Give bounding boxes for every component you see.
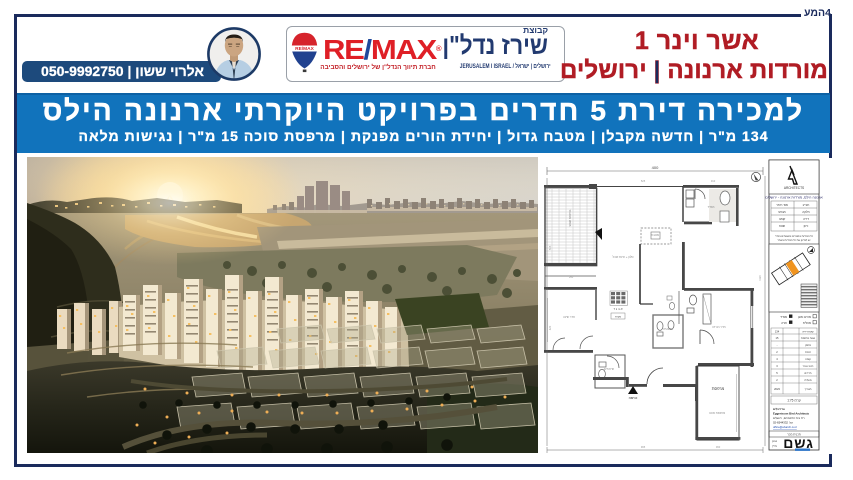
svg-text:אמבטיה: אמבטיה [663,327,673,331]
svg-text:שטח מרפסת: שטח מרפסת [801,337,815,340]
svg-text:310: 310 [711,179,716,183]
svg-text:400: 400 [652,165,659,170]
svg-text:יש לבדוק את כל המידות באתר: יש לבדוק את כל המידות באתר [777,238,810,242]
svg-text:מגרש: מגרש [778,210,785,214]
svg-text:מטבח: מטבח [651,233,659,237]
svg-text:מעלית: מעלית [804,378,811,382]
svg-text:995: 995 [641,445,646,449]
svg-text:טל: 02-6544332: טל: 02-6544332 [773,421,793,425]
svg-text:מחסן: מחסן [805,344,811,347]
svg-text:ממ"ד: ממ"ד [708,205,715,209]
svg-text:RE/MAX: RE/MAX [295,46,314,52]
svg-text:מרפסת: מרפסת [712,386,725,391]
svg-text:-: - [777,344,778,347]
svg-text:חדר הורים: חדר הורים [712,325,725,329]
svg-text:כל המידות במטרים והשטחים במ"ר: כל המידות במטרים והשטחים במ"ר [775,234,814,238]
svg-text:נדל"ן: נדל"ן [772,445,777,448]
svg-text:מס' היתר: מס' היתר [776,203,788,207]
svg-text:525: 525 [641,179,646,183]
svg-text:מרפסת שמש: מרפסת שמש [568,210,572,227]
svg-text:תב"ע: תב"ע [803,203,810,207]
svg-text:ARCHITECTS: ARCHITECTS [784,186,804,190]
svg-text:קומה: קומה [805,358,811,361]
svg-text:רח' בית הדפוס 12, ירושלים: רח' בית הדפוס 12, ירושלים [773,416,805,420]
svg-text:כיווני אוויר: כיווני אוויר [803,365,814,368]
svg-text:מעלית: מעלית [803,321,811,325]
svg-text:134: 134 [775,330,780,334]
svg-text:חניה: חניה [781,321,787,325]
svg-text:Eggertsson Bird Architects: Eggertsson Bird Architects [773,412,810,416]
svg-text:חלקה: חלקה [802,210,809,214]
svg-text:תאריך: תאריך [805,388,812,391]
svg-text:360: 360 [716,445,721,449]
svg-text:דירה: דירה [803,217,809,221]
svg-text:מרחב מוגן: מרחב מוגן [798,315,811,319]
svg-text:קומה: קומה [779,217,786,221]
svg-text:350: 350 [569,275,574,279]
svg-text:קנ"מ 1:75: קנ"מ 1:75 [787,399,801,403]
svg-text:שירותים: שירותים [604,367,615,371]
svg-text:מרפסת סוכה: מרפסת סוכה [709,411,725,415]
svg-text:515: 515 [548,245,552,250]
svg-text:2023: 2023 [774,387,780,391]
svg-text:חדר שינה: חדר שינה [563,315,575,319]
svg-text:1120: 1120 [758,275,762,281]
svg-text:כניסה: כניסה [629,396,638,400]
svg-text:חניות: חניות [805,351,811,354]
svg-text:סלון + פינת אוכל: סלון + פינת אוכל [613,255,634,259]
svg-text:ממ"ד: ממ"ד [780,315,787,319]
svg-text:חדרים: חדרים [805,372,812,375]
svg-text:שטח דירה: שטח דירה [802,331,813,334]
svg-text:420: 420 [548,325,552,330]
svg-text:ארנונה הילס, מורדות ארנונה - י: ארנונה הילס, מורדות ארנונה - ירושלים [765,196,823,200]
svg-text:אדריכלים: אדריכלים [773,407,785,411]
svg-text:מקרא: מקרא [615,316,622,319]
svg-text:כיוון: כיוון [804,224,809,228]
svg-text:שיווק: שיווק [772,440,777,443]
svg-text:א ב ג ד: א ב ג ד [613,307,622,311]
svg-text:שטח: שטח [779,224,786,228]
svg-text:office@ebarch.co.il: office@ebarch.co.il [773,425,797,429]
